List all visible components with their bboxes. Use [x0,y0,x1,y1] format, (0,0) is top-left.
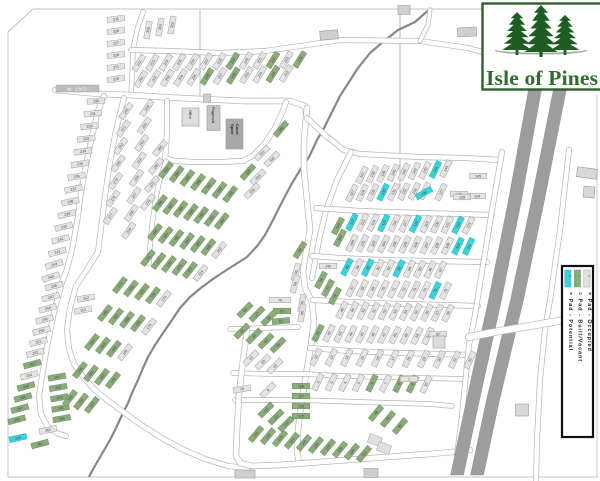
svg-text:231: 231 [90,112,96,117]
svg-text:86: 86 [300,311,305,316]
svg-text:= Pad - Occupied: = Pad - Occupied [586,292,592,352]
svg-text:117: 117 [298,394,304,398]
svg-text:233: 233 [83,137,89,142]
svg-text:226: 226 [113,29,119,34]
svg-text:227: 227 [113,41,119,46]
svg-text:128: 128 [459,195,465,199]
svg-text:1: 1 [578,275,582,277]
svg-text:1: 1 [587,275,591,277]
svg-text:230: 230 [93,99,99,103]
svg-text:116: 116 [298,404,304,408]
svg-text:234: 234 [80,149,86,154]
svg-text:118: 118 [298,384,304,388]
svg-text:Playground: Playground [211,107,215,123]
svg-text:Court: Court [235,124,240,135]
svg-text:149: 149 [325,264,331,268]
svg-text:52: 52 [280,309,284,313]
svg-text:371: 371 [113,65,119,70]
svg-text:124: 124 [474,194,480,198]
svg-text:79: 79 [278,298,282,302]
svg-text:1: 1 [568,275,572,277]
svg-text:145: 145 [475,174,481,178]
svg-text:1: 1 [408,377,410,381]
svg-text:379: 379 [113,77,119,82]
svg-text:= Pad - Built/Vacant: = Pad - Built/Vacant [576,292,582,362]
svg-text:Office: Office [188,110,192,119]
svg-text:232: 232 [86,124,92,129]
svg-text:Sport: Sport [230,124,235,135]
svg-text:Isle of Pines: Isle of Pines [486,66,598,90]
svg-text:W 2ND: W 2ND [67,87,88,92]
svg-text:76: 76 [240,387,245,392]
svg-text:57: 57 [436,332,440,336]
svg-text:228: 228 [113,53,119,58]
svg-text:61: 61 [279,319,283,323]
svg-text:211: 211 [113,17,119,22]
svg-text:115: 115 [298,414,304,418]
svg-text:= Pad - Potential: = Pad - Potential [567,292,573,351]
